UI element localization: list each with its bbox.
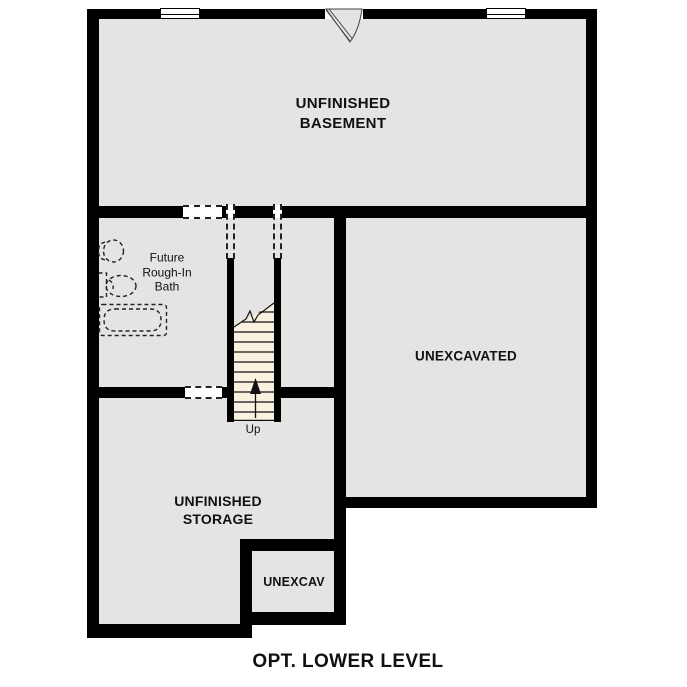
basement-label: UNFINISHED BASEMENT xyxy=(296,94,391,134)
stair-wall-left xyxy=(227,258,234,422)
west-wing-floor xyxy=(93,213,340,625)
plan-title: OPT. LOWER LEVEL xyxy=(252,651,443,673)
bath-label: Future Rough-In Bath xyxy=(142,250,191,294)
stair-wall-dashed-left xyxy=(226,204,235,259)
window-symbol-right xyxy=(486,8,526,19)
wall-unexcavated-bottom xyxy=(334,497,597,508)
window-mullion xyxy=(161,14,199,15)
unexcav-wall-bottom xyxy=(240,612,346,625)
wall-right xyxy=(586,9,597,508)
unexcavated-label: UNEXCAVATED xyxy=(415,349,517,364)
stair-up-label: Up xyxy=(246,424,261,436)
wall-stair-east xyxy=(274,387,346,398)
window-symbol-left xyxy=(160,8,200,19)
unexcav-small-label: UNEXCAV xyxy=(263,575,325,589)
door-opening-gap xyxy=(325,9,363,19)
storage-label: UNFINISHED STORAGE xyxy=(174,492,262,528)
window-mullion xyxy=(487,14,525,15)
wall-storage-bottom xyxy=(87,624,252,638)
wall-center-vertical xyxy=(334,206,346,625)
wall-left xyxy=(87,9,99,638)
floor-plan: UNFINISHED BASEMENT UNEXCAVATED Future R… xyxy=(0,0,687,687)
opening-basement-to-bath xyxy=(183,205,222,219)
stair-wall-dashed-right xyxy=(273,204,282,259)
stair-wall-right xyxy=(274,258,281,422)
opening-bath-to-storage xyxy=(185,386,222,399)
unexcav-wall-top xyxy=(240,539,335,551)
